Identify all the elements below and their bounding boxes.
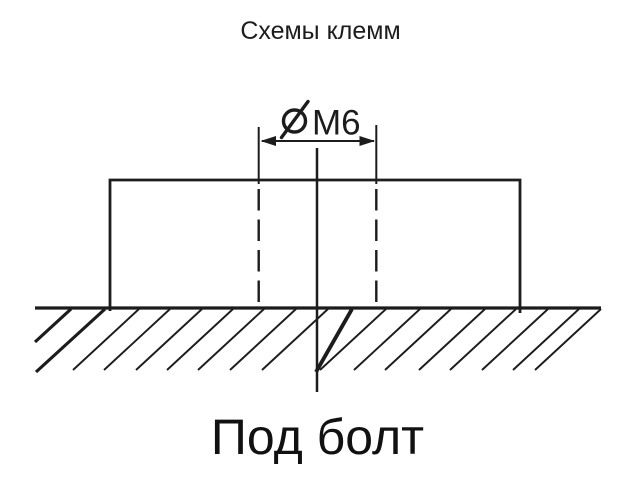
svg-text:М6: М6 [312,104,361,143]
svg-text:Под болт: Под болт [211,409,424,465]
svg-text:Схемы клемм: Схемы клемм [240,17,400,45]
